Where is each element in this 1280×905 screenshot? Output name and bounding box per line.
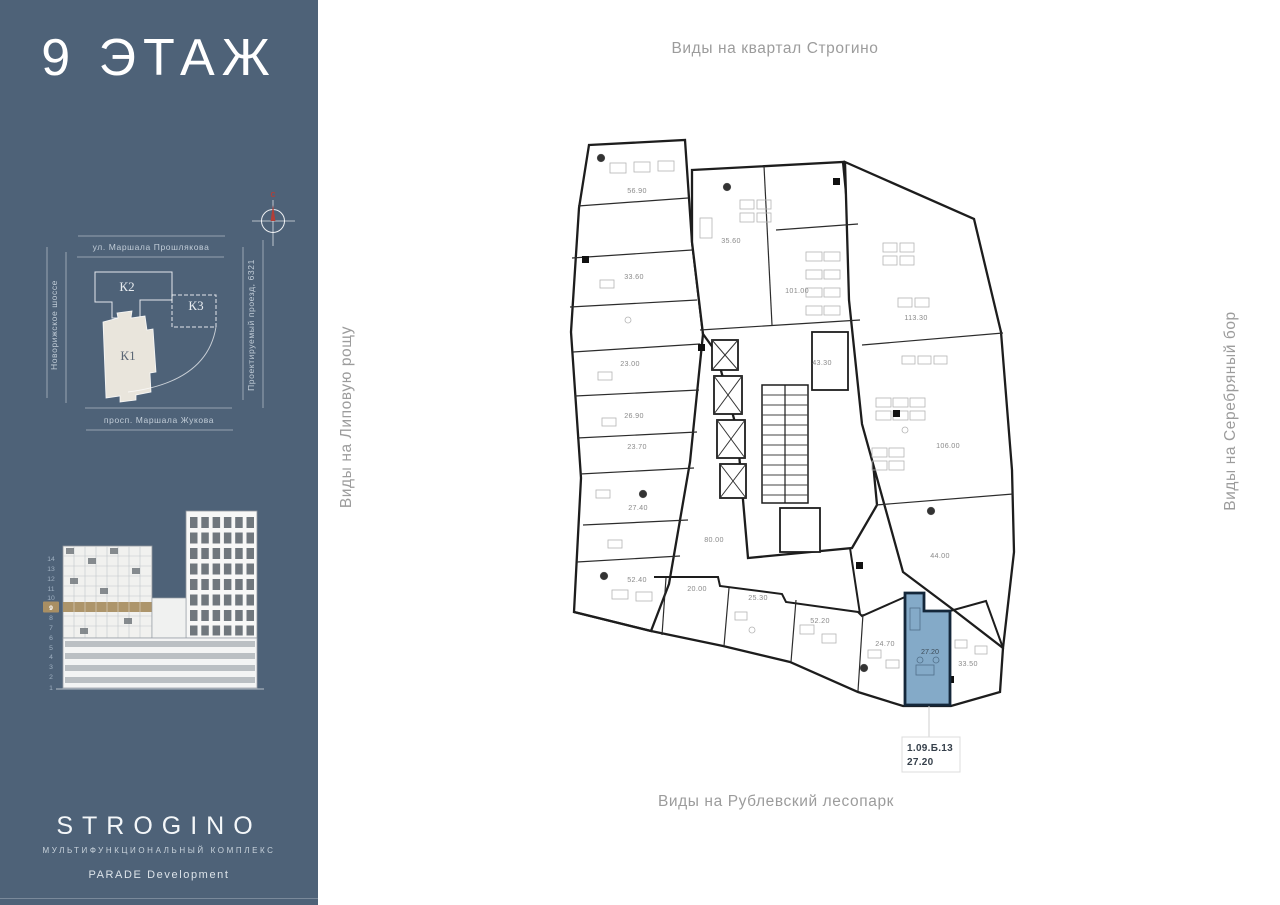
room-area-label: 25.30 (748, 593, 768, 602)
room-area-label: 23.70 (627, 442, 647, 451)
room-area-label: 20.00 (687, 584, 707, 593)
floor-number-12: 12 (47, 576, 55, 583)
corridor-wall (850, 548, 860, 614)
floor-title: 9 ЭТАЖ (0, 28, 318, 88)
room-area-label: 24.70 (875, 639, 895, 648)
room-area-label: 106.00 (936, 441, 960, 450)
compass-north-label: С (270, 192, 275, 199)
floor-number-6: 6 (49, 635, 53, 642)
street-top-label: ул. Маршала Прошлякова (93, 242, 210, 252)
page: 9 ЭТАЖ С ул. Маршала Прошлякова просп. М… (0, 0, 1280, 905)
room-area-label: 101.00 (785, 286, 809, 295)
view-label-top: Виды на квартал Строгино (671, 40, 878, 58)
floor-number-3: 3 (49, 664, 53, 671)
floor-number-4: 4 (49, 654, 53, 661)
street-left-label: Новорижское шоссе (49, 280, 59, 370)
selected-unit-area-label: 27.20 (921, 647, 939, 656)
room-area-label: 43.30 (812, 358, 832, 367)
developer-name: PARADE Development (0, 869, 318, 881)
floor-number-11: 11 (47, 586, 54, 593)
view-label-right: Виды на Серебряный бор (1222, 311, 1240, 511)
sidebar: 9 ЭТАЖ С ул. Маршала Прошлякова просп. М… (0, 0, 318, 905)
street-right-label: Проектируемый проезд, 6321 (246, 259, 256, 391)
site-plan: ул. Маршала Прошлякова просп. Маршала Жу… (35, 228, 295, 440)
floor-number-14: 14 (47, 556, 55, 563)
room-area-label: 80.00 (704, 535, 724, 544)
street-bottom-label: просп. Маршала Жукова (104, 415, 214, 425)
floor-number-13: 13 (47, 566, 55, 573)
elevation-floor9-strip (63, 602, 152, 612)
brand-name: STROGINO (0, 812, 318, 841)
stairs (762, 385, 808, 503)
room-area-label: 52.20 (810, 616, 830, 625)
floor-number-9: 9 (49, 605, 53, 612)
room-area-label: 35.60 (721, 236, 741, 245)
k2-label: К2 (119, 279, 134, 294)
view-label-bottom: Виды на Рублевский лесопарк (658, 793, 894, 811)
k3-label: К3 (188, 298, 203, 313)
room-area-label: 56.90 (627, 186, 647, 195)
room-area-label: 26.90 (624, 411, 644, 420)
unit-callout[interactable]: 1.09.Б.13 27.20 (902, 706, 960, 772)
unit-area-value: 27.20 (907, 757, 934, 768)
floor-number-5: 5 (49, 645, 53, 652)
brand-subtitle: МУЛЬТИФУНКЦИОНАЛЬНЫЙ КОМПЛЕКС (0, 846, 318, 855)
unit-id-label: 1.09.Б.13 (907, 743, 953, 754)
elevation-connector (152, 598, 186, 638)
view-label-left: Виды на Липовую рощу (338, 326, 356, 508)
floor-number-1: 1 (49, 685, 53, 692)
floor-number-7: 7 (49, 625, 53, 632)
compass-needle (271, 205, 276, 221)
room-area-label: 44.00 (930, 551, 950, 560)
floor-plan: 56.90 35.60 33.60 101.00 113.30 43.30 23… (540, 110, 1040, 790)
building-elevation: 14 13 12 11 10 9 8 7 6 5 4 3 2 1 (38, 505, 290, 705)
floor-number-column: 14 13 12 11 10 9 8 7 6 5 4 3 2 1 (43, 556, 59, 692)
floor-number-2: 2 (49, 674, 53, 681)
floor-number-10: 10 (47, 595, 55, 602)
room-area-label: 23.00 (620, 359, 640, 368)
logo-block: STROGINO МУЛЬТИФУНКЦИОНАЛЬНЫЙ КОМПЛЕКС P… (0, 812, 318, 881)
floor-number-8: 8 (49, 615, 53, 622)
room-area-label: 27.40 (628, 503, 648, 512)
sidebar-bottom-divider (0, 898, 318, 899)
room-area-label: 33.60 (624, 272, 644, 281)
room-area-label: 113.30 (904, 313, 927, 322)
room-area-label: 52.40 (627, 575, 647, 584)
k1-label: К1 (120, 348, 135, 363)
room-area-label: 33.50 (958, 659, 978, 668)
